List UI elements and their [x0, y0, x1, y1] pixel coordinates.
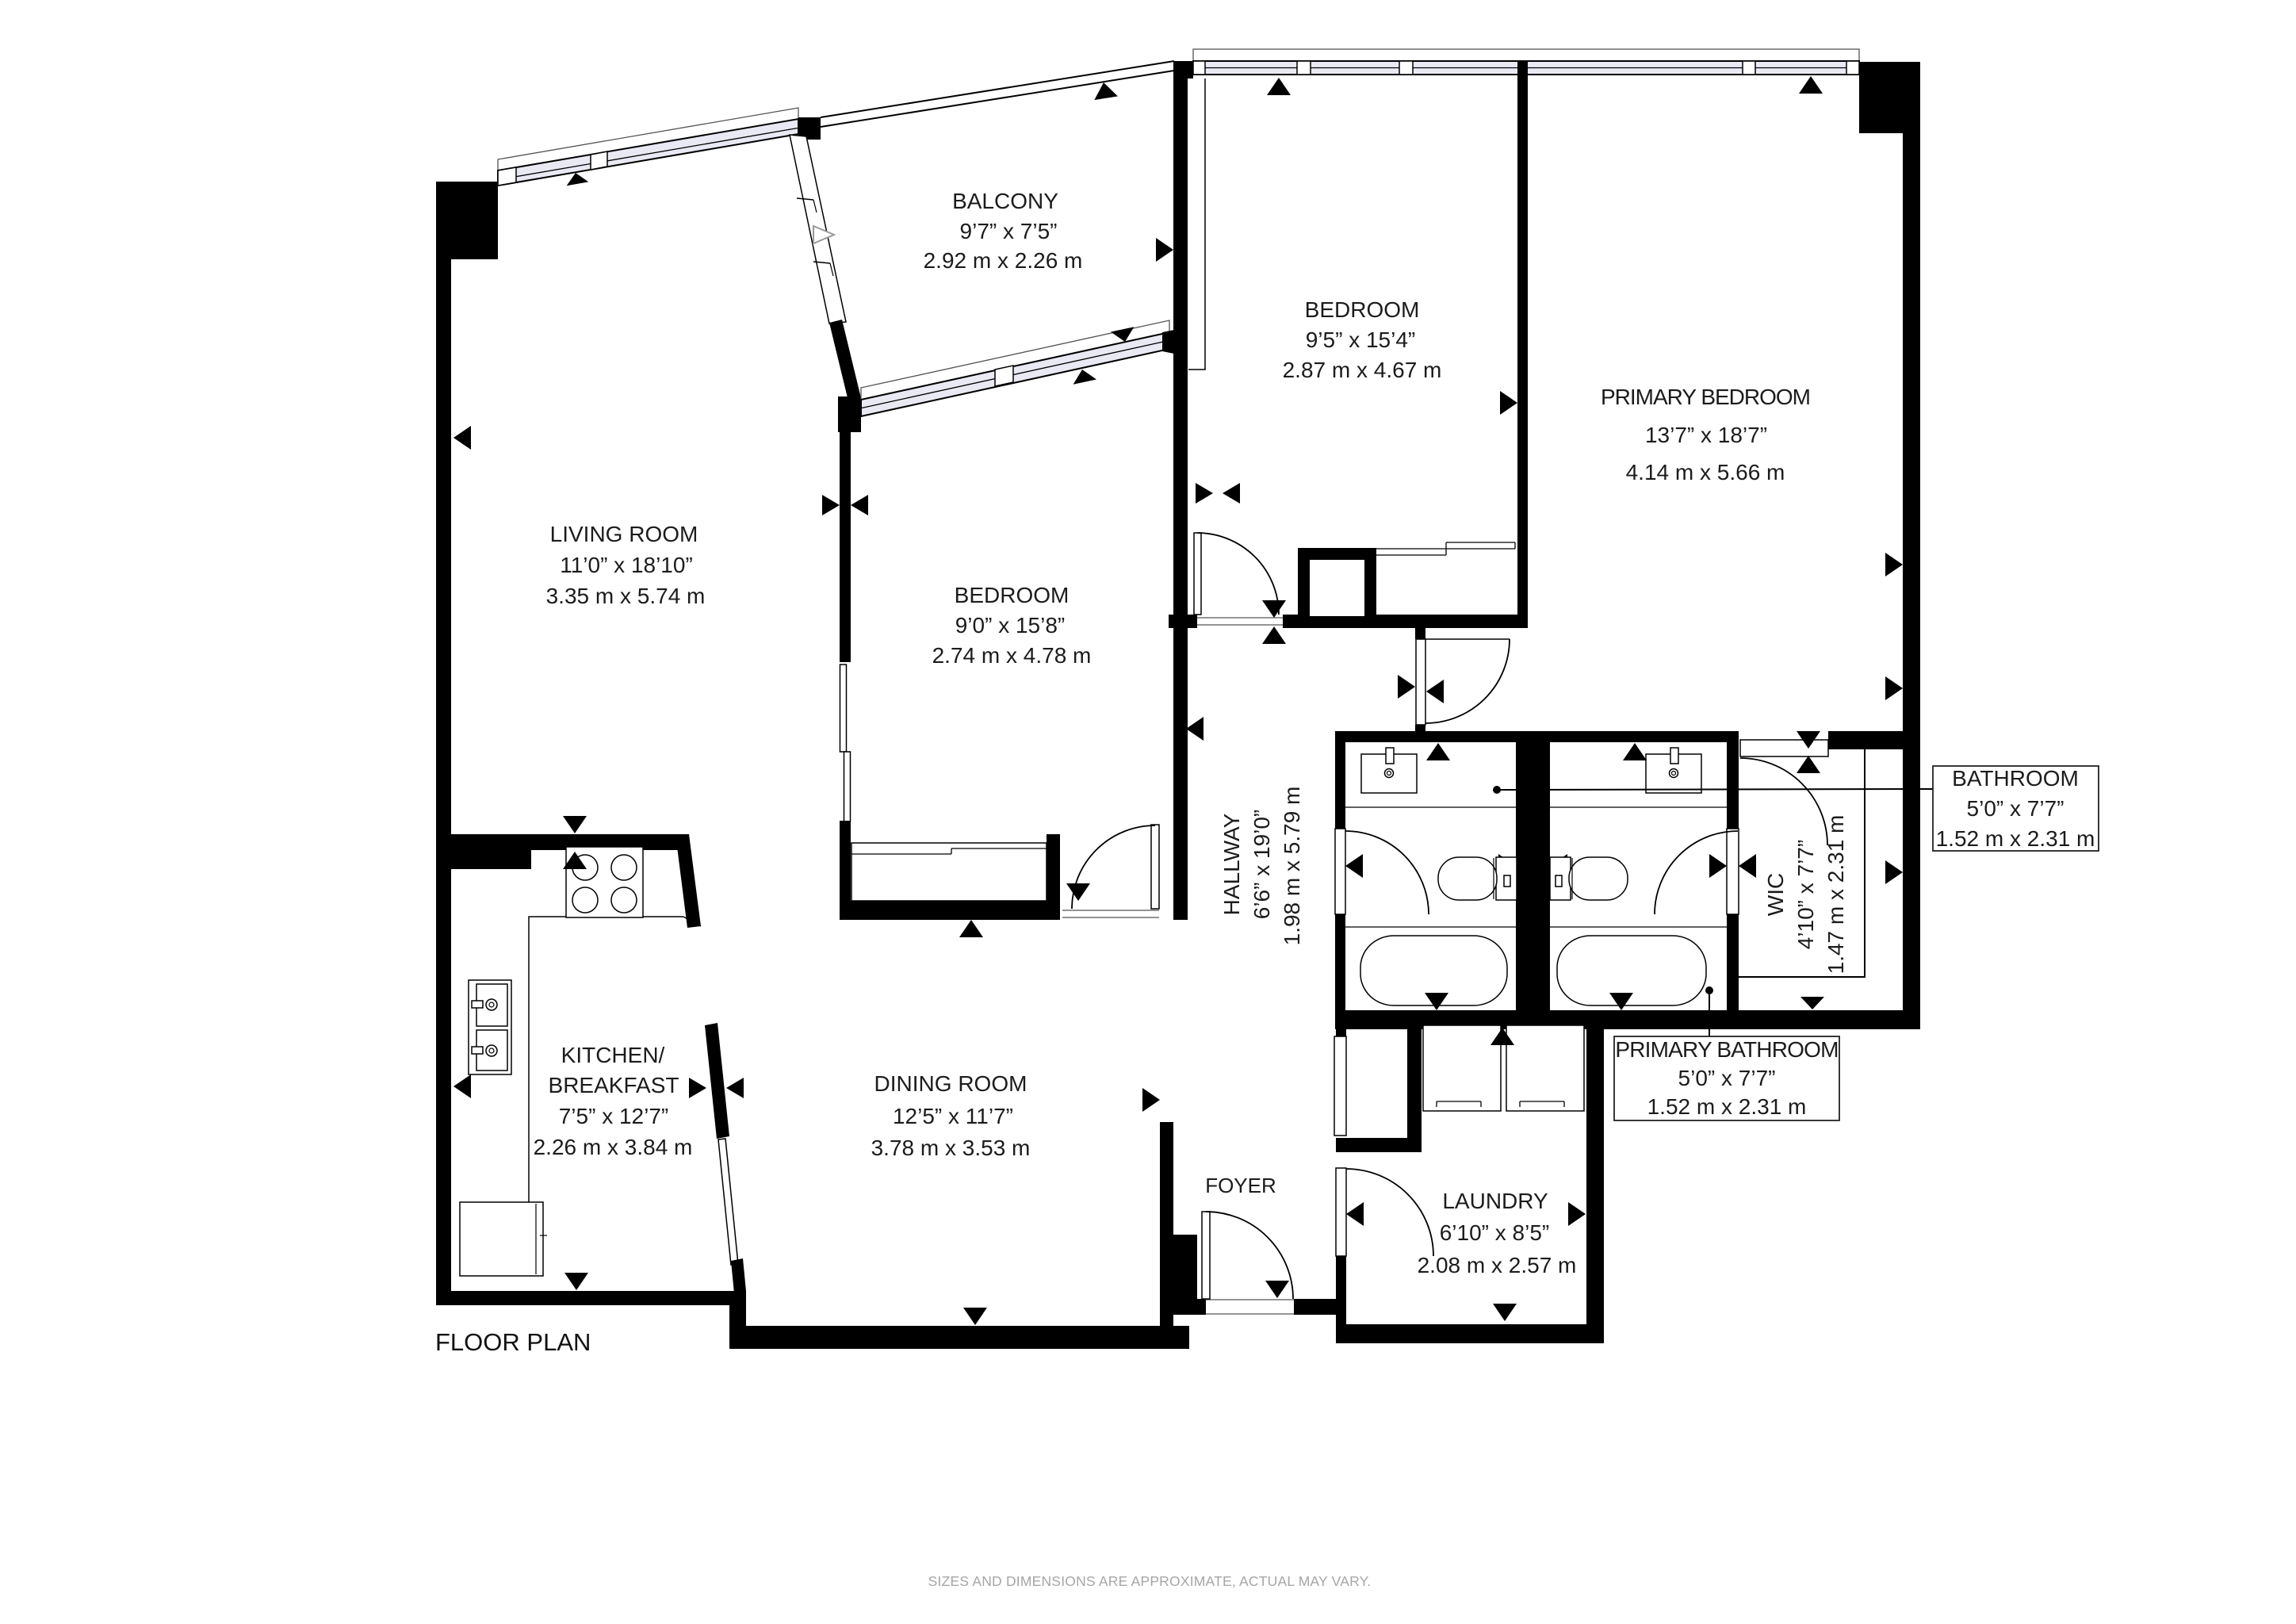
svg-text:1.52 m x 2.31 m: 1.52 m x 2.31 m — [1647, 1094, 1807, 1119]
svg-text:6’6” x 19’0”: 6’6” x 19’0” — [1249, 810, 1274, 920]
svg-text:LAUNDRY: LAUNDRY — [1442, 1189, 1548, 1213]
svg-text:BREAKFAST: BREAKFAST — [549, 1073, 679, 1097]
svg-text:7’5” x 12’7”: 7’5” x 12’7” — [559, 1104, 669, 1128]
svg-text:9’0” x 15’8”: 9’0” x 15’8” — [955, 613, 1066, 638]
svg-text:13’7” x 18’7”: 13’7” x 18’7” — [1645, 423, 1767, 447]
svg-text:2.92 m x 2.26 m: 2.92 m x 2.26 m — [924, 248, 1083, 273]
svg-text:HALLWAY: HALLWAY — [1219, 813, 1244, 915]
svg-text:SIZES AND DIMENSIONS ARE APPRO: SIZES AND DIMENSIONS ARE APPROXIMATE, AC… — [928, 1573, 1372, 1589]
svg-text:4’10” x 7’7”: 4’10” x 7’7” — [1793, 840, 1818, 950]
svg-text:3.35 m x 5.74 m: 3.35 m x 5.74 m — [546, 584, 706, 608]
svg-text:FOYER: FOYER — [1205, 1174, 1276, 1197]
svg-text:4.14 m x 5.66 m: 4.14 m x 5.66 m — [1626, 460, 1785, 485]
svg-text:DINING ROOM: DINING ROOM — [874, 1071, 1027, 1096]
svg-text:9’5” x 15’4”: 9’5” x 15’4” — [1306, 327, 1416, 352]
svg-text:2.87 m x 4.67 m: 2.87 m x 4.67 m — [1283, 358, 1442, 382]
svg-text:5’0” x 7’7”: 5’0” x 7’7” — [1678, 1066, 1776, 1090]
svg-text:PRIMARY BATHROOM: PRIMARY BATHROOM — [1615, 1037, 1838, 1062]
svg-text:9’7” x 7’5”: 9’7” x 7’5” — [960, 219, 1058, 243]
svg-text:12’5” x 11’7”: 12’5” x 11’7” — [893, 1104, 1013, 1128]
svg-text:2.74 m x 4.78 m: 2.74 m x 4.78 m — [932, 643, 1092, 668]
svg-text:BEDROOM: BEDROOM — [1305, 297, 1420, 322]
svg-text:FLOOR PLAN: FLOOR PLAN — [435, 1328, 591, 1356]
svg-text:1.98 m x 5.79 m: 1.98 m x 5.79 m — [1280, 787, 1304, 946]
svg-text:KITCHEN/: KITCHEN/ — [561, 1043, 665, 1067]
svg-text:11’0” x 18’10”: 11’0” x 18’10” — [560, 553, 693, 577]
svg-text:3.78 m x 3.53 m: 3.78 m x 3.53 m — [871, 1136, 1031, 1160]
svg-text:2.26 m x 3.84 m: 2.26 m x 3.84 m — [534, 1135, 693, 1159]
svg-text:6’10” x 8’5”: 6’10” x 8’5” — [1440, 1220, 1550, 1245]
svg-text:WIC: WIC — [1763, 873, 1788, 916]
svg-text:1.47 m x 2.31 m: 1.47 m x 2.31 m — [1823, 815, 1848, 975]
svg-text:BEDROOM: BEDROOM — [955, 583, 1070, 607]
svg-text:5’0” x 7’7”: 5’0” x 7’7” — [1967, 796, 2064, 821]
svg-text:BATHROOM: BATHROOM — [1952, 766, 2079, 791]
svg-text:LIVING ROOM: LIVING ROOM — [550, 522, 698, 546]
svg-text:BALCONY: BALCONY — [952, 189, 1058, 213]
svg-text:2.08 m x 2.57 m: 2.08 m x 2.57 m — [1418, 1253, 1577, 1277]
svg-text:PRIMARY BEDROOM: PRIMARY BEDROOM — [1601, 385, 1810, 409]
svg-text:1.52 m x 2.31 m: 1.52 m x 2.31 m — [1936, 826, 2095, 851]
